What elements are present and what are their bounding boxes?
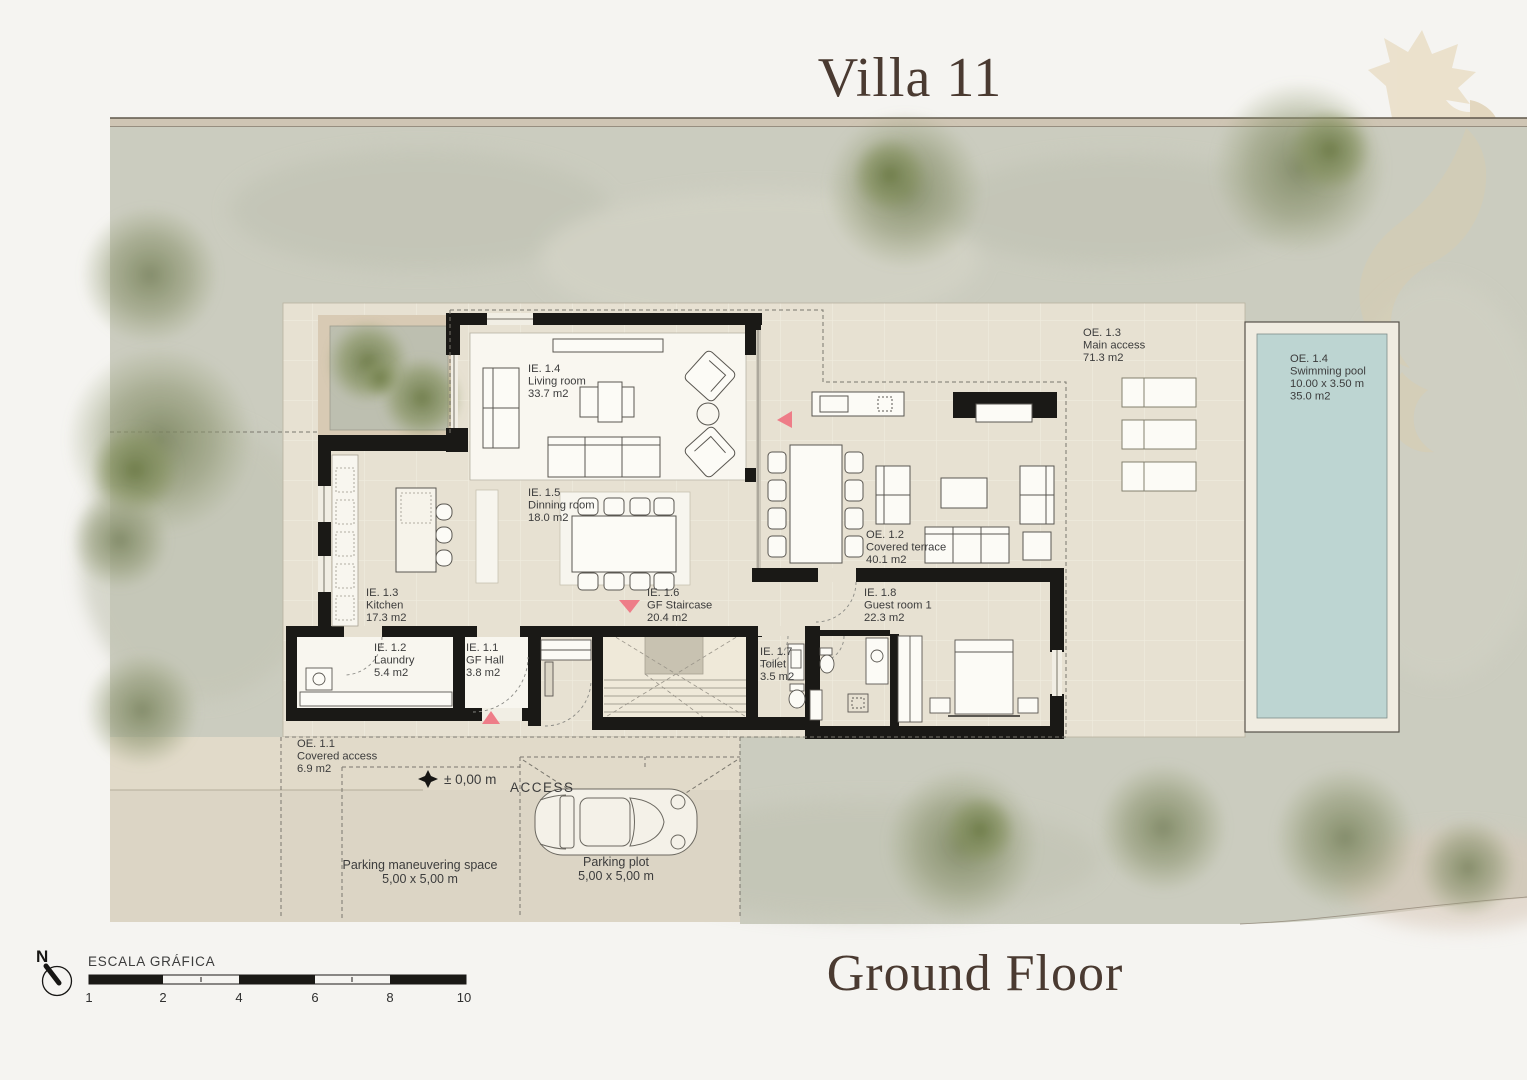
level-marker-label: ± 0,00 m — [444, 772, 496, 787]
scale-bar-label: ESCALA GRÁFICA — [88, 954, 216, 969]
scale-tick: 10 — [457, 990, 471, 1005]
kitchen-counter-strip — [476, 490, 498, 583]
label-hall: IE. 1.1GF Hall3.8 m2 — [466, 642, 504, 679]
scale-tick: 6 — [311, 990, 318, 1005]
parking-plot-label: Parking plot5,00 x 5,00 m — [578, 855, 654, 883]
scale-tick: 8 — [386, 990, 393, 1005]
access-label: ACCESS — [510, 780, 575, 795]
floor-title: Ground Floor — [827, 945, 1124, 1002]
floor-plan-page: ± 0,00 m ACCESS IE. 1.4Living room33.7 m… — [0, 0, 1527, 1080]
north-label: N — [36, 947, 48, 966]
scale-tick: 4 — [235, 990, 242, 1005]
courtyard-garden — [318, 315, 464, 440]
scale-tick: 2 — [159, 990, 166, 1005]
scale-tick: 1 — [85, 990, 92, 1005]
dining-furniture — [572, 498, 676, 590]
sun-loungers — [1122, 378, 1196, 491]
parked-car — [535, 789, 697, 855]
page-title: Villa 11 — [818, 47, 1003, 109]
floor-plan-drawing: ± 0,00 m ACCESS IE. 1.4Living room33.7 m… — [0, 0, 1527, 1080]
